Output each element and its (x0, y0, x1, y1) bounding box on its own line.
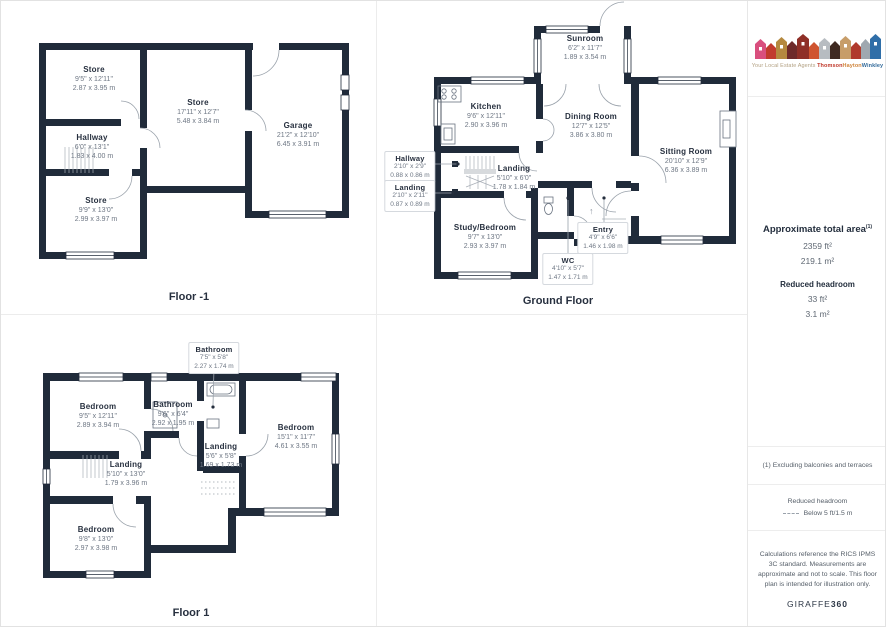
ground-floor-label: Ground Floor (523, 295, 593, 307)
footnote-section: (1) Excluding balconies and terraces (748, 446, 886, 484)
reduced-headroom-title: Reduced headroom (780, 280, 855, 289)
brand-hayton: Hayton (843, 63, 862, 69)
room-label-garage: Garage 21'2" x 12'10" 6.45 x 3.91 m (277, 121, 319, 149)
room-label-study-bedroom: Study/Bedroom 9'7" x 13'0" 2.93 x 3.97 m (454, 223, 516, 251)
room-label-sunroom: Sunroom 6'2" x 11'7" 1.89 x 3.54 m (564, 34, 606, 62)
room-label-kitchen: Kitchen 9'6" x 12'11" 2.90 x 3.96 m (465, 102, 507, 130)
floor-minus1-plan-drawing (1, 1, 376, 314)
total-area-m: 219.1 m² (801, 256, 835, 266)
room-label-hallway: Hallway 6'0" x 13'1" 1.83 x 4.00 m (71, 133, 113, 161)
legend-row: Below 5 ft/1.5 m (783, 510, 853, 517)
room-label-landing-left: Landing 5'10" x 13'0" 1.79 x 3.96 m (105, 460, 147, 488)
disclaimer-section: Calculations reference the RICS IPMS 3C … (748, 530, 886, 627)
room-label-bedroom-bottom: Bedroom 9'8" x 13'0" 2.97 x 3.98 m (75, 525, 117, 553)
brand-thomson: Thomson (817, 63, 842, 69)
room-label-landing-ground: Landing 5'10" x 6'0" 1.78 x 1.84 m (493, 164, 535, 192)
callout-wc: WC 4'10" x 5'7" 1.47 x 1.71 m (542, 253, 593, 285)
disclaimer-text: Calculations reference the RICS IPMS 3C … (757, 550, 878, 591)
callout-bathroom: Bathroom 7'5" x 5'8" 2.27 x 1.74 m (188, 342, 239, 374)
callout-landing: Landing 2'10" x 2'11" 0.87 x 0.89 m (384, 180, 435, 212)
total-area-section: Approximate total area(1) 2359 ft² 219.1… (748, 96, 886, 446)
callout-hallway: Hallway 2'10" x 2'9" 0.88 x 0.86 m (384, 151, 435, 183)
legend-value: Below 5 ft/1.5 m (804, 510, 853, 517)
room-label-bedroom-right: Bedroom 15'1" x 11'7" 4.61 x 3.55 m (275, 423, 317, 451)
room-label-landing-right: Landing 5'6" x 5'8" 1.69 x 1.73 m (200, 442, 242, 470)
floor-1-label: Floor 1 (173, 607, 210, 619)
reduced-headroom-ft: 33 ft² (808, 294, 827, 304)
total-area-title: Approximate total area(1) (763, 224, 872, 235)
room-label-sitting-room: Sitting Room 20'10" x 12'9" 6.36 x 3.89 … (660, 147, 712, 175)
ground-floor-plan: Sunroom 6'2" x 11'7" 1.89 x 3.54 m Kitch… (376, 1, 747, 314)
floor-1-plan: Bathroom 7'5" x 5'8" 2.27 x 1.74 m Bedro… (1, 314, 376, 627)
agency-logo-section: Your Local Estate Agents ThomsonHaytonWi… (748, 1, 886, 96)
legend-title: Reduced headroom (788, 498, 848, 505)
agency-tagline: Your Local Estate Agents ThomsonHaytonWi… (752, 63, 883, 69)
room-label-store-bottom: Store 9'9" x 13'0" 2.99 x 3.97 m (75, 196, 117, 224)
floorplan-page: Store 9'5" x 12'11" 2.87 x 3.95 m Store … (0, 0, 886, 627)
legend-section: Reduced headroom Below 5 ft/1.5 m (748, 484, 886, 530)
callout-entry: Entry 4'9" x 6'6" 1.46 x 1.98 m (577, 222, 628, 254)
plan-area: Store 9'5" x 12'11" 2.87 x 3.95 m Store … (1, 1, 747, 627)
brand-winkley: Winkley (862, 63, 883, 69)
entry-direction-arrow-icon: ↑ (589, 206, 594, 216)
room-label-bathroom: Bathroom 9'6" x 6'4" 2.92 x 1.95 m (152, 400, 194, 428)
footnote-marker: (1) (866, 224, 872, 230)
giraffe360-credit: GIRAFFE360 (787, 599, 848, 609)
total-area-ft: 2359 ft² (803, 241, 832, 251)
room-label-store-mid: Store 17'11" x 12'7" 5.48 x 3.84 m (177, 98, 219, 126)
thw-houses-logo-icon (755, 29, 881, 61)
reduced-headroom-dashes (201, 482, 237, 494)
floor-minus1-plan: Store 9'5" x 12'11" 2.87 x 3.95 m Store … (1, 1, 376, 314)
floor-minus1-label: Floor -1 (169, 291, 209, 303)
dashed-line-icon (783, 513, 799, 514)
reduced-headroom-m: 3.1 m² (805, 309, 829, 319)
room-label-bedroom-topleft: Bedroom 9'5" x 12'11" 2.89 x 3.94 m (77, 402, 119, 430)
room-label-store-top: Store 9'5" x 12'11" 2.87 x 3.95 m (73, 65, 115, 93)
sidebar: Your Local Estate Agents ThomsonHaytonWi… (747, 1, 886, 627)
stairs-icon (464, 156, 496, 189)
room-label-dining-room: Dining Room 12'7" x 12'5" 3.86 x 3.80 m (565, 112, 617, 140)
balconies-footnote: (1) Excluding balconies and terraces (763, 462, 873, 469)
